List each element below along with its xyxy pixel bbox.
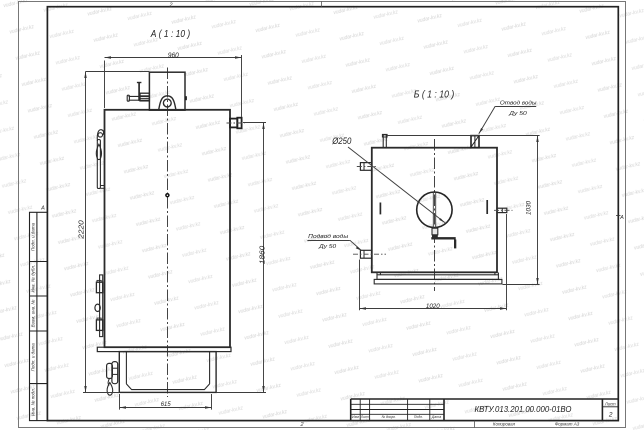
- svg-text:2: 2: [299, 422, 303, 428]
- svg-text:Подп.: Подп.: [414, 414, 423, 419]
- svg-text:А: А: [619, 215, 624, 221]
- svg-text:Ø250: Ø250: [331, 136, 351, 146]
- svg-text:Изм: Изм: [352, 414, 359, 419]
- svg-text:КВТУ.013.201.00.000-01ВО: КВТУ.013.201.00.000-01ВО: [475, 404, 572, 414]
- svg-text:Взам. инв. №: Взам. инв. №: [31, 299, 36, 327]
- svg-text:1030: 1030: [525, 201, 532, 215]
- svg-text:1020: 1020: [426, 303, 440, 310]
- svg-text:Ду 50: Ду 50: [508, 111, 528, 117]
- svg-text:Копировал: Копировал: [493, 422, 516, 427]
- svg-text:615: 615: [161, 401, 171, 408]
- svg-text:Инв. № подл.: Инв. № подл.: [31, 388, 36, 416]
- svg-text:А ( 1 : 10 ): А ( 1 : 10 ): [150, 28, 190, 40]
- svg-text:Инв. № дубл.: Инв. № дубл.: [31, 265, 36, 293]
- svg-text:Лист: Лист: [604, 401, 616, 406]
- svg-text:А: А: [40, 206, 45, 212]
- svg-text:Отвод воды: Отвод воды: [500, 101, 537, 107]
- svg-text:Подп. и дата: Подп. и дата: [31, 222, 36, 251]
- svg-text:Дата: Дата: [431, 414, 442, 419]
- svg-text:Подп. и дата: Подп. и дата: [31, 343, 36, 372]
- svg-text:Ду 50: Ду 50: [318, 244, 337, 250]
- svg-text:1860: 1860: [259, 246, 266, 265]
- svg-text:Лист: Лист: [360, 414, 369, 419]
- svg-text:960: 960: [168, 53, 179, 60]
- svg-text:Подвод воды: Подвод воды: [308, 234, 349, 240]
- svg-text:2220: 2220: [78, 220, 85, 240]
- svg-text:2: 2: [608, 411, 613, 418]
- svg-text:№ докум.: № докум.: [382, 414, 396, 419]
- svg-text:Б ( 1 : 10 ): Б ( 1 : 10 ): [414, 89, 455, 101]
- svg-text:Формат А3: Формат А3: [555, 422, 580, 427]
- svg-text:2: 2: [168, 2, 172, 8]
